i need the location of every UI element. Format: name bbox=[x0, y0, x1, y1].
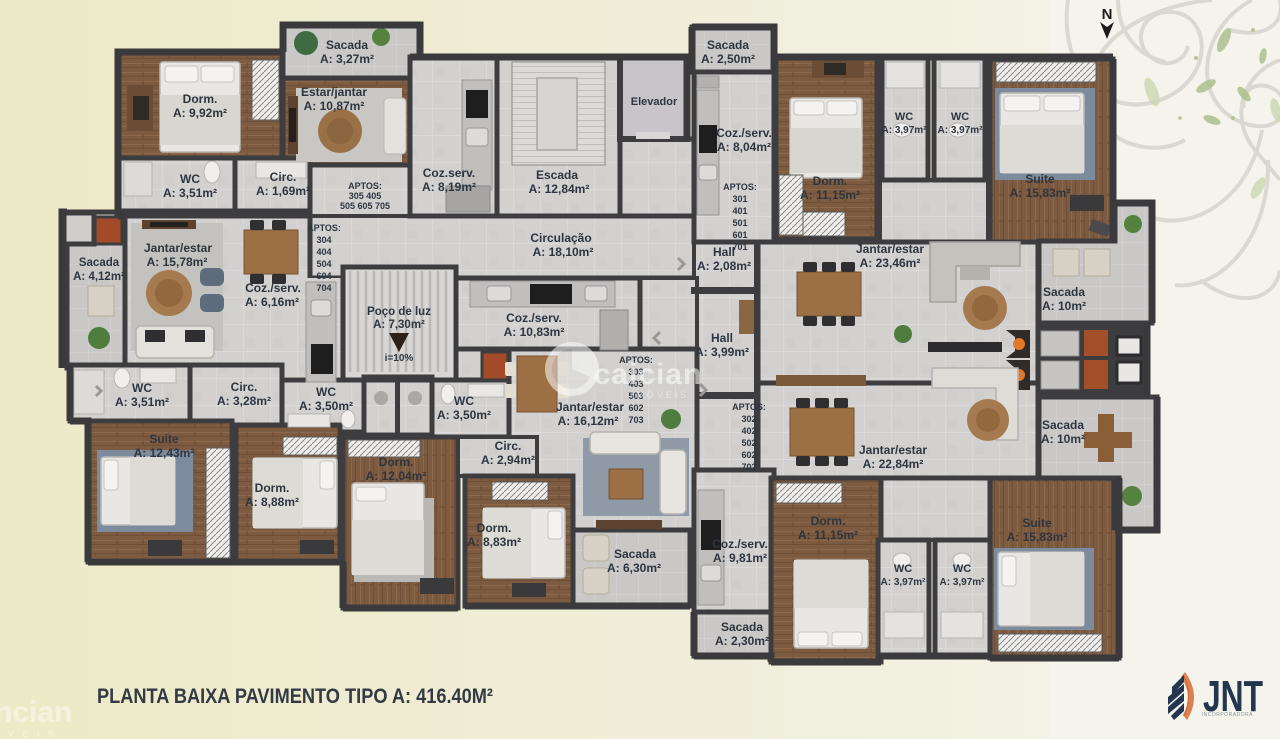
svg-text:WC: WC bbox=[180, 172, 200, 186]
svg-text:A: 3,51m²: A: 3,51m² bbox=[115, 395, 169, 409]
svg-text:A: 10m²: A: 10m² bbox=[1041, 432, 1085, 446]
svg-text:IMÓVEIS: IMÓVEIS bbox=[631, 390, 690, 400]
svg-text:601: 601 bbox=[732, 230, 747, 240]
svg-text:A: 3,28m²: A: 3,28m² bbox=[217, 394, 271, 408]
svg-text:Jantar/estar: Jantar/estar bbox=[856, 242, 924, 256]
svg-text:A: 11,15m²: A: 11,15m² bbox=[800, 188, 860, 202]
svg-text:A: 3,99m²: A: 3,99m² bbox=[695, 345, 749, 359]
svg-text:Coz./serv.: Coz./serv. bbox=[716, 126, 772, 140]
svg-text:A: 2,08m²: A: 2,08m² bbox=[697, 259, 751, 273]
svg-text:Suite: Suite bbox=[149, 432, 179, 446]
svg-text:A: 15,83m²: A: 15,83m² bbox=[1010, 186, 1071, 200]
svg-text:A: 12,43m²: A: 12,43m² bbox=[134, 446, 195, 460]
svg-text:Estar/jantar: Estar/jantar bbox=[301, 85, 367, 99]
svg-text:A: 3,97m²: A: 3,97m² bbox=[937, 125, 983, 136]
svg-text:A: 6,16m²: A: 6,16m² bbox=[245, 295, 299, 309]
svg-text:A: 3,50m²: A: 3,50m² bbox=[437, 408, 491, 422]
svg-text:i=10%: i=10% bbox=[385, 353, 414, 364]
svg-text:404: 404 bbox=[316, 247, 331, 257]
svg-text:APTOS:: APTOS: bbox=[348, 181, 382, 191]
svg-text:A: 7,30m²: A: 7,30m² bbox=[373, 319, 425, 331]
svg-text:702: 702 bbox=[741, 462, 756, 472]
svg-text:A: 3,97m²: A: 3,97m² bbox=[881, 125, 927, 136]
svg-text:A: 9,92m²: A: 9,92m² bbox=[173, 106, 227, 120]
svg-text:N: N bbox=[1102, 6, 1113, 23]
svg-text:A: 23,46m²: A: 23,46m² bbox=[860, 256, 921, 270]
svg-text:A: 1,69m²: A: 1,69m² bbox=[256, 184, 310, 198]
svg-text:A: 8,83m²: A: 8,83m² bbox=[467, 535, 521, 549]
svg-text:Sacada: Sacada bbox=[614, 547, 656, 561]
svg-text:A: 12,04m²: A: 12,04m² bbox=[366, 469, 427, 483]
svg-text:WC: WC bbox=[316, 385, 336, 399]
svg-text:505 605 705: 505 605 705 bbox=[340, 201, 390, 211]
svg-text:Coz.serv.: Coz.serv. bbox=[423, 166, 475, 180]
svg-text:Dorm.: Dorm. bbox=[183, 92, 218, 106]
svg-text:Poço de luz: Poço de luz bbox=[367, 306, 431, 318]
svg-text:INCORPORADORA: INCORPORADORA bbox=[1202, 712, 1253, 718]
svg-text:Sacada: Sacada bbox=[1043, 285, 1085, 299]
svg-text:A: 3,51m²: A: 3,51m² bbox=[163, 186, 217, 200]
svg-text:301: 301 bbox=[732, 194, 747, 204]
svg-text:WC: WC bbox=[895, 111, 913, 123]
svg-text:Jantar/estar: Jantar/estar bbox=[859, 443, 927, 457]
svg-text:604: 604 bbox=[316, 271, 331, 281]
svg-text:502: 502 bbox=[741, 438, 756, 448]
svg-text:Escada: Escada bbox=[536, 168, 578, 182]
svg-text:A: 2,50m²: A: 2,50m² bbox=[701, 52, 755, 66]
svg-text:A: 22,84m²: A: 22,84m² bbox=[863, 457, 924, 471]
svg-text:V E I S: V E I S bbox=[8, 729, 57, 739]
svg-text:602: 602 bbox=[741, 450, 756, 460]
svg-text:WC: WC bbox=[894, 563, 912, 575]
svg-text:Hall: Hall bbox=[711, 331, 733, 345]
svg-text:Sacada: Sacada bbox=[1042, 418, 1084, 432]
svg-text:Jantar/estar: Jantar/estar bbox=[144, 241, 212, 255]
svg-text:A: 10m²: A: 10m² bbox=[1042, 299, 1086, 313]
svg-text:Dorm.: Dorm. bbox=[379, 455, 414, 469]
svg-text:PLANTA BAIXA PAVIMENTO TIPO A:: PLANTA BAIXA PAVIMENTO TIPO A: 416.40M² bbox=[97, 685, 493, 708]
svg-text:Circ.: Circ. bbox=[231, 380, 258, 394]
svg-text:A: 16,12m²: A: 16,12m² bbox=[558, 414, 619, 428]
svg-text:A: 3,27m²: A: 3,27m² bbox=[320, 52, 374, 66]
svg-text:caician: caician bbox=[594, 358, 703, 391]
svg-text:A: 2,94m²: A: 2,94m² bbox=[481, 453, 535, 467]
svg-text:APTOS:: APTOS: bbox=[723, 182, 757, 192]
svg-text:302: 302 bbox=[741, 414, 756, 424]
svg-text:Dorm.: Dorm. bbox=[813, 174, 848, 188]
svg-text:Circulação: Circulação bbox=[530, 231, 591, 245]
svg-text:Suite: Suite bbox=[1025, 172, 1055, 186]
svg-text:Sacada: Sacada bbox=[721, 620, 763, 634]
svg-text:401: 401 bbox=[732, 206, 747, 216]
svg-text:WC: WC bbox=[953, 563, 971, 575]
svg-text:501: 501 bbox=[732, 218, 747, 228]
svg-text:A: 4,12m²: A: 4,12m² bbox=[73, 271, 125, 283]
svg-text:ncian: ncian bbox=[0, 696, 72, 729]
svg-text:Dorm.: Dorm. bbox=[811, 514, 846, 528]
svg-text:A: 3,97m²: A: 3,97m² bbox=[880, 577, 926, 588]
svg-text:703: 703 bbox=[628, 415, 643, 425]
svg-text:504: 504 bbox=[316, 259, 331, 269]
svg-text:402: 402 bbox=[741, 426, 756, 436]
svg-text:Jantar/estar: Jantar/estar bbox=[556, 400, 624, 414]
svg-text:APTOS:: APTOS: bbox=[307, 223, 341, 233]
svg-text:WC: WC bbox=[951, 111, 969, 123]
svg-text:A: 3,50m²: A: 3,50m² bbox=[299, 399, 353, 413]
svg-text:Coz./serv.: Coz./serv. bbox=[506, 311, 562, 325]
svg-text:A: 9,81m²: A: 9,81m² bbox=[713, 551, 767, 565]
svg-text:Coz./serv.: Coz./serv. bbox=[712, 537, 768, 551]
svg-text:A: 12,84m²: A: 12,84m² bbox=[529, 182, 590, 196]
svg-text:Circ.: Circ. bbox=[495, 439, 522, 453]
svg-text:APTOS:: APTOS: bbox=[732, 402, 766, 412]
svg-text:A: 8,04m²: A: 8,04m² bbox=[717, 140, 771, 154]
svg-text:WC: WC bbox=[454, 394, 474, 408]
svg-text:305 405: 305 405 bbox=[349, 191, 382, 201]
svg-text:304: 304 bbox=[316, 235, 331, 245]
svg-text:Sacada: Sacada bbox=[326, 38, 368, 52]
svg-text:A: 6,30m²: A: 6,30m² bbox=[607, 561, 661, 575]
svg-text:A: 10,83m²: A: 10,83m² bbox=[504, 325, 565, 339]
svg-text:Coz./serv.: Coz./serv. bbox=[245, 281, 301, 295]
svg-text:A: 8,88m²: A: 8,88m² bbox=[245, 495, 299, 509]
svg-text:A: 8,19m²: A: 8,19m² bbox=[422, 180, 476, 194]
svg-text:A: 15,78m²: A: 15,78m² bbox=[147, 255, 208, 269]
svg-text:602: 602 bbox=[628, 403, 643, 413]
svg-text:Dorm.: Dorm. bbox=[477, 521, 512, 535]
svg-text:Suite: Suite bbox=[1022, 516, 1052, 530]
svg-text:704: 704 bbox=[316, 283, 331, 293]
svg-text:Sacada: Sacada bbox=[79, 257, 120, 269]
svg-text:A: 18,10m²: A: 18,10m² bbox=[533, 245, 594, 259]
svg-text:WC: WC bbox=[132, 381, 152, 395]
svg-text:A: 11,15m²: A: 11,15m² bbox=[798, 528, 858, 542]
svg-text:A: 15,83m²: A: 15,83m² bbox=[1007, 530, 1068, 544]
svg-text:Dorm.: Dorm. bbox=[255, 481, 290, 495]
svg-text:Circ.: Circ. bbox=[270, 170, 297, 184]
svg-text:A: 10,87m²: A: 10,87m² bbox=[304, 99, 365, 113]
svg-text:A: 2,30m²: A: 2,30m² bbox=[715, 634, 769, 648]
svg-text:A: 3,97m²: A: 3,97m² bbox=[939, 577, 985, 588]
svg-text:Sacada: Sacada bbox=[707, 38, 749, 52]
svg-text:Elevador: Elevador bbox=[631, 96, 678, 108]
svg-text:701: 701 bbox=[732, 242, 747, 252]
